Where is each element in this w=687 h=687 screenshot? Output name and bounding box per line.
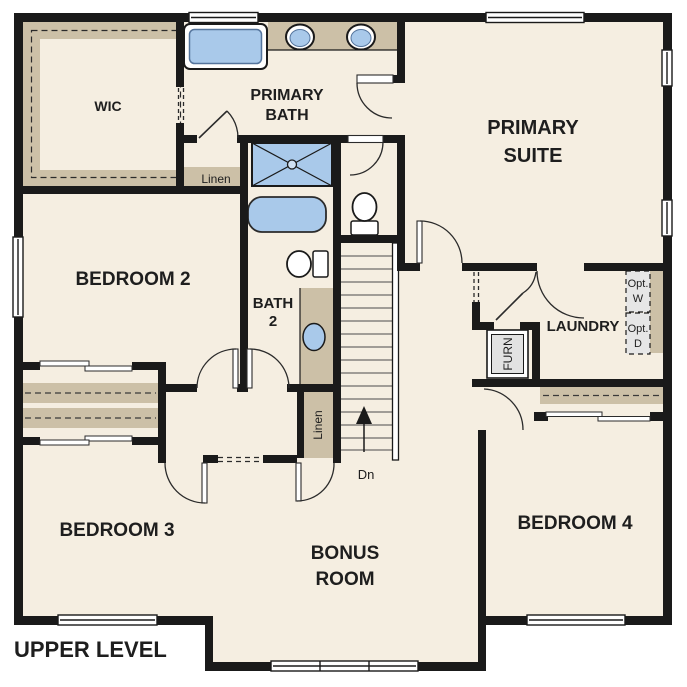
primary-bath-door-jamb (357, 75, 393, 83)
bedroom2-door-leaf (233, 349, 238, 388)
bath2-sink (303, 324, 325, 351)
label-primary-bath-2: BATH (265, 107, 308, 124)
shower-drain (288, 160, 297, 169)
bath2-toilet (287, 251, 311, 277)
label-laundry: LAUNDRY (547, 318, 620, 335)
water-closet-door-jamb (348, 136, 383, 143)
label-bath2-1: BATH (253, 295, 294, 312)
label-bedroom2: BEDROOM 2 (75, 269, 190, 290)
label-stairs-dn: Dn (358, 467, 375, 482)
label-opt-d-2: D (634, 338, 642, 350)
label-opt-w-1: Opt. (628, 278, 649, 290)
linen-hall-door-leaf (296, 463, 301, 501)
bath2-door-leaf (247, 349, 252, 388)
label-bedroom3: BEDROOM 3 (59, 520, 174, 541)
primary-tub (190, 30, 262, 64)
bedroom2-closet-door (40, 361, 89, 366)
label-furnace: FURN (501, 337, 515, 370)
label-bonus-2: ROOM (315, 569, 374, 590)
water-closet-toilet (353, 193, 377, 221)
floor-plan-svg: WIC PRIMARY BATH PRIMARY SUITE BEDROOM 2… (0, 0, 687, 687)
label-bonus-1: BONUS (311, 543, 380, 564)
label-primary-suite-2: SUITE (504, 145, 563, 167)
laundry-counter-strip (650, 271, 663, 353)
bedroom4-closet-door (546, 412, 602, 417)
stair-railing (393, 243, 399, 460)
label-bedroom4: BEDROOM 4 (517, 513, 633, 534)
page-title: UPPER LEVEL (14, 637, 167, 662)
label-primary-suite-1: PRIMARY (487, 117, 579, 139)
bath2-tub (248, 197, 326, 232)
primary-sink-left (290, 30, 310, 47)
label-opt-d-1: Opt. (628, 323, 649, 335)
primary-suite-door-leaf (417, 221, 422, 263)
label-primary-bath-1: PRIMARY (250, 87, 324, 104)
label-bath2-2: 2 (269, 313, 277, 330)
floor-plan-page: WIC PRIMARY BATH PRIMARY SUITE BEDROOM 2… (0, 0, 687, 687)
label-linen-hall: Linen (311, 410, 325, 439)
bedroom3-closet-door (85, 436, 132, 441)
primary-sink-right (351, 30, 371, 47)
label-opt-w-2: W (633, 293, 644, 305)
label-linen-upper: Linen (201, 172, 230, 186)
bedroom3-door-leaf (202, 463, 207, 503)
label-wic: WIC (94, 98, 121, 114)
